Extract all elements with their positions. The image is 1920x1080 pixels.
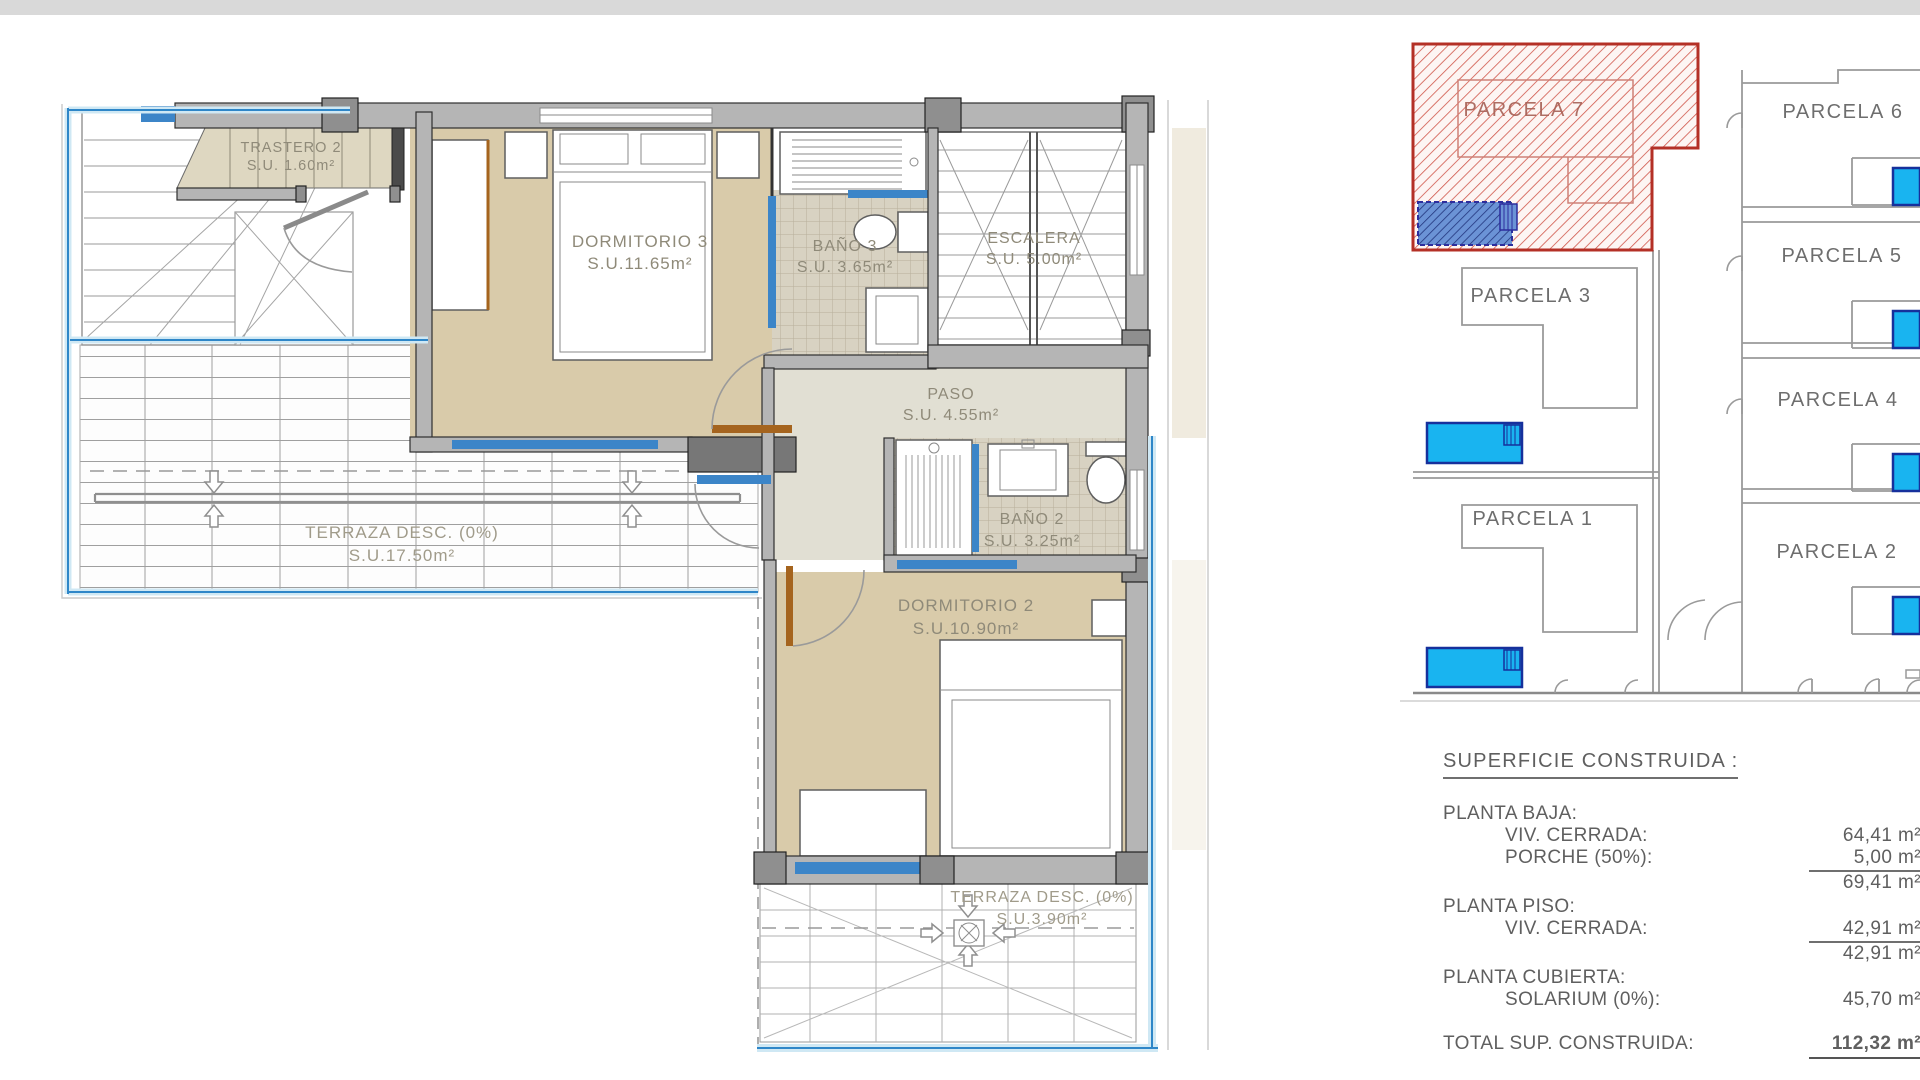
label-bano-2-area: S.U. 3.25m² bbox=[984, 533, 1080, 550]
viv-cerrada-baja-label: VIV. CERRADA: bbox=[1443, 825, 1648, 847]
dresser bbox=[800, 790, 926, 856]
plan-sheet: TRASTERO 2 S.U. 1.60m² DORMITORIO 3 S.U.… bbox=[0, 0, 1920, 1080]
parcela-5 bbox=[1727, 256, 1920, 348]
porche-label: PORCHE (50%): bbox=[1443, 847, 1653, 869]
window-strip bbox=[768, 196, 776, 328]
label-bano-3: BAÑO 3 bbox=[813, 235, 878, 255]
label-escalera-area: S.U. 5.00m² bbox=[986, 251, 1082, 268]
piso-subtotal: 42,91 m² bbox=[1809, 943, 1920, 965]
sink-bano-3 bbox=[866, 288, 928, 352]
label-parcela-3: PARCELA 3 bbox=[1471, 285, 1592, 307]
wardrobe bbox=[432, 140, 488, 310]
label-parcela-4: PARCELA 4 bbox=[1778, 389, 1899, 411]
label-terraza-grande-area: S.U.17.50m² bbox=[349, 546, 455, 565]
pool-parcela-4 bbox=[1893, 454, 1920, 491]
summary-section-planta-cubierta: PLANTA CUBIERTA: bbox=[1443, 967, 1920, 989]
sink-bano-2 bbox=[988, 440, 1068, 496]
label-dormitorio-3-area: S.U.11.65m² bbox=[587, 254, 692, 273]
window-strip bbox=[795, 862, 933, 874]
label-parcela-5: PARCELA 5 bbox=[1782, 245, 1903, 267]
floor-drain-icon bbox=[954, 920, 984, 946]
room-dormitorio-3 bbox=[410, 128, 772, 452]
window-strip bbox=[848, 190, 930, 198]
label-terraza-grande: TERRAZA DESC. (0%) bbox=[305, 523, 499, 542]
shower-glass bbox=[972, 444, 979, 552]
parcela-1 bbox=[1427, 505, 1637, 687]
summary-title: SUPERFICIE CONSTRUIDA : bbox=[1443, 750, 1738, 779]
nightstand bbox=[1092, 600, 1126, 636]
adjacent-unit-hint bbox=[1168, 100, 1208, 1050]
shower-tray bbox=[780, 132, 926, 194]
label-parcela-6: PARCELA 6 bbox=[1783, 101, 1904, 123]
label-terraza-inferior: TERRAZA DESC. (0%) bbox=[950, 889, 1133, 906]
label-parcela-2: PARCELA 2 bbox=[1777, 541, 1898, 563]
floorplan-drawing: TRASTERO 2 S.U. 1.60m² DORMITORIO 3 S.U.… bbox=[0, 0, 1220, 1080]
pool-parcela-5 bbox=[1893, 311, 1920, 348]
label-paso-area: S.U. 4.55m² bbox=[903, 407, 999, 424]
planta-baja-label: PLANTA BAJA: bbox=[1443, 803, 1577, 825]
planta-cubierta-label: PLANTA CUBIERTA: bbox=[1443, 967, 1626, 989]
solarium-value: 45,70 m² bbox=[1809, 989, 1920, 1011]
label-terraza-inferior-area: S.U.3.90m² bbox=[997, 911, 1088, 928]
viv-cerrada-baja-value: 64,41 m² bbox=[1809, 825, 1920, 847]
siteplan-drawing: PARCELA 7 PARCELA 6 PARCELA 5 PARCELA 3 … bbox=[1400, 25, 1920, 715]
nightstand bbox=[717, 132, 759, 178]
label-escalera: ESCALERA bbox=[987, 230, 1080, 247]
shower-tray bbox=[896, 440, 972, 556]
pool-parcela-1 bbox=[1427, 648, 1522, 687]
nightstand bbox=[505, 132, 547, 178]
parcela-6 bbox=[1727, 70, 1920, 205]
toilet-bano-2 bbox=[1086, 442, 1126, 503]
baja-subtotal: 69,41 m² bbox=[1809, 872, 1920, 894]
porche-value: 5,00 m² bbox=[1809, 847, 1920, 872]
planta-piso-label: PLANTA PISO: bbox=[1443, 896, 1575, 918]
summary-section-planta-baja: PLANTA BAJA: bbox=[1443, 803, 1920, 825]
viv-cerrada-piso-value: 42,91 m² bbox=[1809, 918, 1920, 943]
bed-dormitorio-2 bbox=[940, 640, 1122, 856]
door-leaf-dormitorio-2 bbox=[786, 566, 793, 646]
window-strip bbox=[452, 440, 658, 449]
summary-total-row: TOTAL SUP. CONSTRUIDA: 112,32 m² bbox=[1443, 1033, 1920, 1059]
total-value: 112,32 m² bbox=[1809, 1033, 1920, 1059]
total-label: TOTAL SUP. CONSTRUIDA: bbox=[1443, 1033, 1694, 1055]
label-parcela-1: PARCELA 1 bbox=[1473, 508, 1594, 530]
label-dormitorio-3: DORMITORIO 3 bbox=[572, 232, 708, 251]
door-leaf-dormitorio-3 bbox=[712, 425, 792, 433]
label-bano-2: BAÑO 2 bbox=[1000, 508, 1065, 528]
label-parcela-7: PARCELA 7 bbox=[1464, 99, 1585, 121]
parcela-7-highlight bbox=[1413, 44, 1698, 250]
label-trastero-2-area: S.U. 1.60m² bbox=[247, 158, 335, 174]
parcela-4 bbox=[1727, 399, 1920, 491]
surface-summary: SUPERFICIE CONSTRUIDA : PLANTA BAJA: VIV… bbox=[1443, 750, 1920, 1059]
terrace-door-glass bbox=[697, 475, 771, 484]
pool-parcela-3 bbox=[1427, 423, 1522, 463]
summary-row: VIV. CERRADA: 64,41 m² bbox=[1443, 825, 1920, 847]
summary-row: VIV. CERRADA: 42,91 m² bbox=[1443, 918, 1920, 943]
label-paso: PASO bbox=[927, 386, 974, 403]
pool-parcela-2 bbox=[1893, 597, 1920, 634]
pool-parcela-6 bbox=[1893, 168, 1920, 205]
label-trastero-2: TRASTERO 2 bbox=[240, 140, 341, 156]
summary-row: PORCHE (50%): 5,00 m² bbox=[1443, 847, 1920, 872]
pool-parcela-7 bbox=[1418, 202, 1517, 245]
window-strip bbox=[897, 560, 1017, 569]
summary-row: SOLARIUM (0%): 45,70 m² bbox=[1443, 989, 1920, 1011]
viv-cerrada-piso-label: VIV. CERRADA: bbox=[1443, 918, 1648, 940]
solarium-label: SOLARIUM (0%): bbox=[1443, 989, 1661, 1011]
summary-row: 42,91 m² bbox=[1443, 943, 1920, 965]
label-dormitorio-2-area: S.U.10.90m² bbox=[913, 619, 1019, 638]
summary-row: 69,41 m² bbox=[1443, 872, 1920, 894]
summary-section-planta-piso: PLANTA PISO: bbox=[1443, 896, 1920, 918]
label-dormitorio-2: DORMITORIO 2 bbox=[898, 596, 1034, 615]
label-bano-3-area: S.U. 3.65m² bbox=[797, 259, 893, 276]
